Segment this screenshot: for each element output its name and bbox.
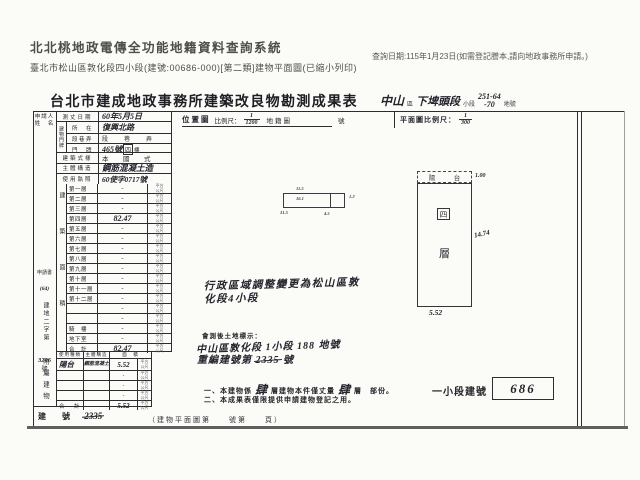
location-sketch-divider — [330, 194, 331, 207]
note-1-a: 一、本建物係 — [204, 388, 252, 395]
applicant-label-line1: 申請人 — [33, 114, 56, 121]
map-header-underline — [182, 126, 332, 127]
attached-total-row: 合 計 5.52 平方公尺 — [57, 401, 151, 410]
case-no-vertical: 建地二字第 — [41, 297, 48, 347]
plan-balcony-dim: 1.00 — [475, 173, 486, 179]
floor-value: - — [122, 296, 124, 302]
address-section-value: 段 巷 弄 — [102, 134, 157, 143]
document-subtitle: 臺北市松山區敦化段四小段(建號:00686-000)[第二類]建物平面圖(已縮小… — [30, 61, 357, 74]
sketch-dim-right: 1.2 — [349, 194, 355, 199]
unit-label: 平方公尺 — [155, 214, 164, 223]
survey-date-value: 60年5月5日 — [102, 111, 142, 122]
floor-plan-header: 平面圖比例尺： 1 300 — [400, 113, 475, 126]
query-date-note: 查詢日期:115年1月23日(如需登記謄本,請向地政事務所申請。) — [372, 51, 588, 62]
unit-label: 平方公尺 — [140, 381, 149, 390]
unit-label: 平方公尺 — [155, 314, 164, 323]
attached-header-row: 使用種類 主體構造 面 積 — [57, 352, 151, 359]
resurvey-building-prefix: 重編建號第 — [197, 355, 252, 366]
sketch-dim-top: 11.5 — [296, 186, 304, 191]
plan-balcony: 陽 台 — [417, 171, 472, 183]
floor-value: - — [122, 226, 124, 232]
unit-label: 平方公尺 — [155, 344, 164, 353]
attached-building-table: 使用種類 主體構造 面 積 陽台 鋼筋混凝土 5.52 平方公尺 - 平方公尺 … — [57, 352, 152, 407]
right-divider-outer — [577, 111, 578, 426]
license-value: 60使字0717號 — [102, 174, 147, 185]
unit-label: 平方公尺 — [155, 284, 164, 293]
right-divider-inner — [581, 111, 582, 426]
new-building-number-value: 686 — [510, 381, 536, 397]
cadastral-map-number-suffix: 號 — [338, 115, 345, 125]
sketch-dim-bottom-right: 4.5 — [324, 211, 330, 216]
floor-value: - — [122, 206, 124, 212]
floor-label: 第六層 — [67, 234, 97, 243]
land-designation-header: 中山 區 下埤頭段 小段 251-64 -70 地號 — [380, 92, 578, 109]
floor-label: 地下室 — [67, 334, 97, 343]
address-section-label: 段巷弄 — [67, 134, 99, 143]
unit-label: 平方公尺 — [155, 194, 164, 203]
doc-bottom-edge — [27, 426, 628, 429]
floor-value: - — [122, 246, 124, 252]
old-building-number: 建 號 2335 — [38, 411, 102, 422]
unit-label: 平方公尺 — [140, 401, 149, 410]
attached-structure: 鋼筋混凝土 — [84, 362, 109, 367]
doc-right-edge — [624, 111, 625, 426]
attached-row-blank: - 平方公尺 — [57, 391, 151, 401]
unit-label: 平方公尺 — [140, 371, 149, 380]
sketch-dim-inner: 16.1 — [296, 196, 304, 201]
note-2: 二、本成果表僅限提供申請建物登記之用。 — [204, 395, 356, 405]
address-section-row: 段巷弄 段 巷 弄 — [67, 134, 171, 144]
floor-value: - — [122, 316, 124, 322]
floor-value-4f: 82.47 — [114, 214, 132, 223]
address-group-rows: 建物門牌 所 在 復興北路 段巷弄 段 巷 弄 門 牌 465號 四 樓 — [57, 122, 171, 153]
attached-row-blank: - 平方公尺 — [57, 381, 151, 391]
unit-label: 平方公尺 — [155, 234, 164, 243]
floor-label: 第十層 — [67, 274, 97, 283]
floor-label: 第五層 — [67, 224, 97, 233]
address-subrows: 所 在 復興北路 段巷弄 段 巷 弄 門 牌 465號 四 樓 — [67, 122, 171, 152]
resurvey-building-line: 重編建號第 2335 號 — [197, 351, 294, 366]
unit-label: 平方公尺 — [140, 391, 149, 400]
address-group-label-cell: 建物門牌 — [57, 122, 67, 152]
building-info-table: 測丈日期 60年5月5日 建物門牌 所 在 復興北路 段巷弄 段 巷 弄 門 牌 — [57, 112, 172, 184]
location-scale-fraction: 1 1200 — [244, 113, 260, 126]
plan-bottom-dimension: 5.52 — [429, 308, 442, 317]
plan-sheet-footer: （建物平面圖第 號第 頁） — [148, 415, 283, 425]
new-building-number-box: 686 — [492, 377, 554, 400]
floor-label: 騎 樓 — [67, 324, 97, 333]
lot-number-value: 251-64 -70 — [478, 93, 501, 109]
attached-area: - — [123, 393, 125, 399]
map-plan-separator — [394, 112, 395, 128]
floor-label: 第一層 — [67, 184, 97, 193]
floor-area-table: 建築面積 第一層-平方公尺 第二層-平方公尺 第三層-平方公尺 第四層82.47… — [57, 184, 172, 352]
floor-value: - — [122, 256, 124, 262]
location-map-label: 位置圖 — [182, 114, 211, 125]
admin-rezoning-note: 行政區域調整變更為松山區敦 化段4小段 — [204, 276, 395, 307]
location-sketch — [283, 193, 345, 208]
address-location-label: 所 在 — [67, 122, 99, 133]
floor-label — [67, 314, 97, 323]
plan-floor-number-boxed: 四 — [437, 208, 450, 220]
floor-label: 第七層 — [67, 244, 97, 253]
applicant-column: 申請人 姓 名 申請書 (64) 建地二字第 3206 號 附屬建物 — [33, 112, 57, 407]
style-label: 建築式樣 — [57, 153, 99, 162]
location-scale-den: 1200 — [244, 119, 260, 126]
floor-value: - — [122, 196, 124, 202]
unit-label: 平方公尺 — [155, 244, 164, 253]
floor-label: 第十二層 — [67, 294, 97, 303]
lot-label: 地號 — [504, 99, 516, 109]
system-title: 北北桃地政電傳全功能地籍資料查詢系統 — [30, 37, 282, 56]
resurvey-building-struck-number: 2335 — [256, 355, 280, 366]
form-title: 台北市建成地政事務所建築改良物勘測成果表 — [50, 91, 358, 111]
floor-label: 第十一層 — [67, 284, 97, 293]
floor-value: - — [122, 266, 124, 272]
note-1-b: 層建物本件僅丈量 — [271, 388, 335, 395]
license-label: 使用執照 — [57, 174, 99, 184]
floor-label: 第九層 — [67, 264, 97, 273]
address-location-value: 復興北路 — [102, 122, 134, 133]
floor-label: 第四層 — [67, 214, 97, 223]
unit-label: 平方公尺 — [155, 334, 164, 343]
structure-label: 主體構造 — [57, 164, 99, 173]
floor-area-side-strip: 建築面積 — [57, 184, 67, 351]
applicant-label: 申請人 姓 名 — [33, 114, 56, 128]
attached-area: 5.52 — [117, 361, 129, 369]
old-building-number-value: 2335 — [84, 411, 102, 421]
license-row: 使用執照 60使字0717號 — [57, 174, 171, 184]
floor-label — [67, 304, 97, 313]
floor-value: - — [122, 326, 124, 332]
floor-value: - — [122, 286, 124, 292]
plan-scale-label: 平面圖比例尺： — [400, 115, 456, 125]
applicant-label-line2: 姓 名 — [33, 121, 56, 128]
floor-label: 第三層 — [67, 204, 97, 213]
section-value: 下埤頭段 — [416, 93, 460, 109]
unit-label: 平方公尺 — [155, 274, 164, 283]
district-label: 區 — [407, 99, 413, 109]
resurvey-building-suffix: 號 — [283, 355, 294, 366]
unit-label: 平方公尺 — [155, 224, 164, 233]
attached-building-side-label: 附屬建物 — [40, 358, 50, 404]
floor-value: - — [122, 236, 124, 242]
structure-value: 鋼筋混凝土造 — [102, 162, 153, 174]
attached-total-label: 合 計 — [59, 402, 82, 410]
unit-label: 平方公尺 — [140, 360, 149, 369]
plan-right-dimension: 14.74 — [473, 228, 490, 239]
attached-area-header: 面 積 — [109, 352, 151, 358]
location-scale-label: 比例尺： — [215, 115, 241, 125]
floor-value: - — [122, 306, 124, 312]
cadastral-map-label: 地籍圖 — [267, 115, 293, 125]
note-1-c: 層 部份。 — [354, 388, 394, 395]
floor-value: - — [122, 336, 124, 342]
floor-label: 第八層 — [67, 254, 97, 263]
attached-row-blank: - 平方公尺 — [57, 371, 151, 381]
floor-label: 第二層 — [67, 194, 97, 203]
district-value: 中山 — [380, 92, 404, 109]
land-query-printout-page: 北北桃地政電傳全功能地籍資料查詢系統 查詢日期:115年1月23日(如需登記謄本… — [0, 0, 640, 480]
location-map-header: 位置圖 比例尺： 1 1200 地籍圖 號 — [182, 113, 345, 126]
case-no-word: 申請書 — [33, 270, 56, 277]
unit-label: 平方公尺 — [155, 264, 164, 273]
lot-number-bottom: -70 — [478, 101, 501, 109]
unit-label: 平方公尺 — [155, 294, 164, 303]
attached-total-value: 5.52 — [117, 402, 129, 410]
new-building-number-label: 一小段建號 — [432, 383, 487, 398]
floor-value: - — [122, 186, 124, 192]
unit-label: 平方公尺 — [155, 304, 164, 313]
attached-use: 陽台 — [59, 359, 74, 370]
address-location-row: 所 在 復興北路 — [67, 122, 171, 134]
attached-use-header: 使用種類 — [57, 352, 83, 358]
attached-area: - — [123, 373, 125, 379]
plan-scale-fraction: 1 300 — [459, 113, 472, 126]
old-building-number-label: 建 號 — [38, 412, 74, 421]
subsection-label: 小段 — [463, 99, 475, 109]
unit-label: 平方公尺 — [155, 204, 164, 213]
sketch-dim-bottom-left: 31.5 — [280, 210, 288, 215]
survey-date-label: 測丈日期 — [57, 112, 99, 121]
floor-value: - — [122, 276, 124, 282]
attached-building-side-label-wrap: 附屬建物 — [33, 358, 56, 404]
case-no-year: (64) — [40, 286, 49, 293]
survey-date-row: 測丈日期 60年5月5日 — [57, 112, 171, 122]
unit-label: 平方公尺 — [155, 254, 164, 263]
unit-label: 平方公尺 — [155, 184, 164, 193]
unit-label: 平方公尺 — [155, 324, 164, 333]
floor-rows: 第一層-平方公尺 第二層-平方公尺 第三層-平方公尺 第四層82.47平方公尺 … — [67, 184, 171, 351]
plan-scale-den: 300 — [459, 119, 472, 126]
attached-structure-header: 主體構造 — [83, 352, 109, 358]
floor-area-side-label: 建築面積 — [57, 192, 66, 351]
plan-floor-character: 層 — [439, 245, 450, 261]
attached-row-balcony: 陽台 鋼筋混凝土 5.52 平方公尺 — [57, 359, 151, 371]
attached-area: - — [123, 383, 125, 389]
address-group-label: 建物門牌 — [58, 126, 65, 148]
structure-row: 主體構造 鋼筋混凝土造 — [57, 164, 171, 174]
